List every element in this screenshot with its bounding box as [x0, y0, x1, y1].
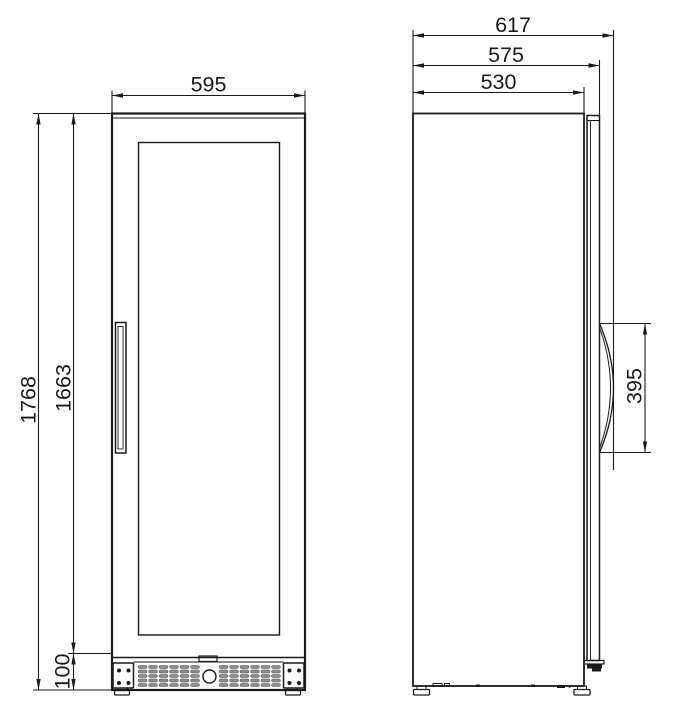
- front-cabinet-outline: [112, 114, 305, 691]
- side-body-outline: [413, 114, 584, 687]
- front-view: 595 1768 1663: [17, 73, 306, 696]
- dim-label-door-height: 1663: [52, 364, 76, 412]
- side-handle-arc: [600, 324, 614, 453]
- front-glass-panel: [139, 143, 280, 636]
- front-door-handle: [116, 323, 127, 454]
- side-door: [587, 116, 600, 661]
- side-bottom-hinge: [584, 661, 604, 672]
- dim-label-width: 595: [191, 73, 227, 97]
- side-dimensions: 617 575 530: [413, 13, 651, 470]
- side-right-foot: [574, 686, 590, 695]
- dim-label-overall-height: 1768: [17, 376, 41, 424]
- dim-label-handle-length: 395: [623, 368, 647, 404]
- dim-door-height-1663: 1663: [52, 114, 76, 654]
- dim-label-base-height: 100: [51, 654, 75, 690]
- dimension-drawing: 595 1768 1663: [0, 0, 700, 724]
- side-view: 617 575 530: [413, 13, 651, 695]
- front-dimensions: 595 1768 1663: [17, 73, 306, 691]
- base-right-bracket: [284, 663, 305, 688]
- dim-label-overall-depth: 617: [495, 13, 531, 37]
- vent-center-hole: [203, 670, 216, 683]
- dim-cabinet-depth-530: 530: [413, 70, 584, 113]
- dim-label-cabinet-depth: 530: [481, 70, 517, 94]
- side-left-foot: [414, 686, 430, 695]
- dim-base-height-100: 100: [51, 654, 76, 691]
- dim-label-depth-without-handle: 575: [488, 43, 524, 67]
- base-left-bracket: [113, 663, 134, 688]
- dim-width-595: 595: [112, 73, 305, 114]
- dim-overall-height-1768: 1768: [17, 114, 41, 691]
